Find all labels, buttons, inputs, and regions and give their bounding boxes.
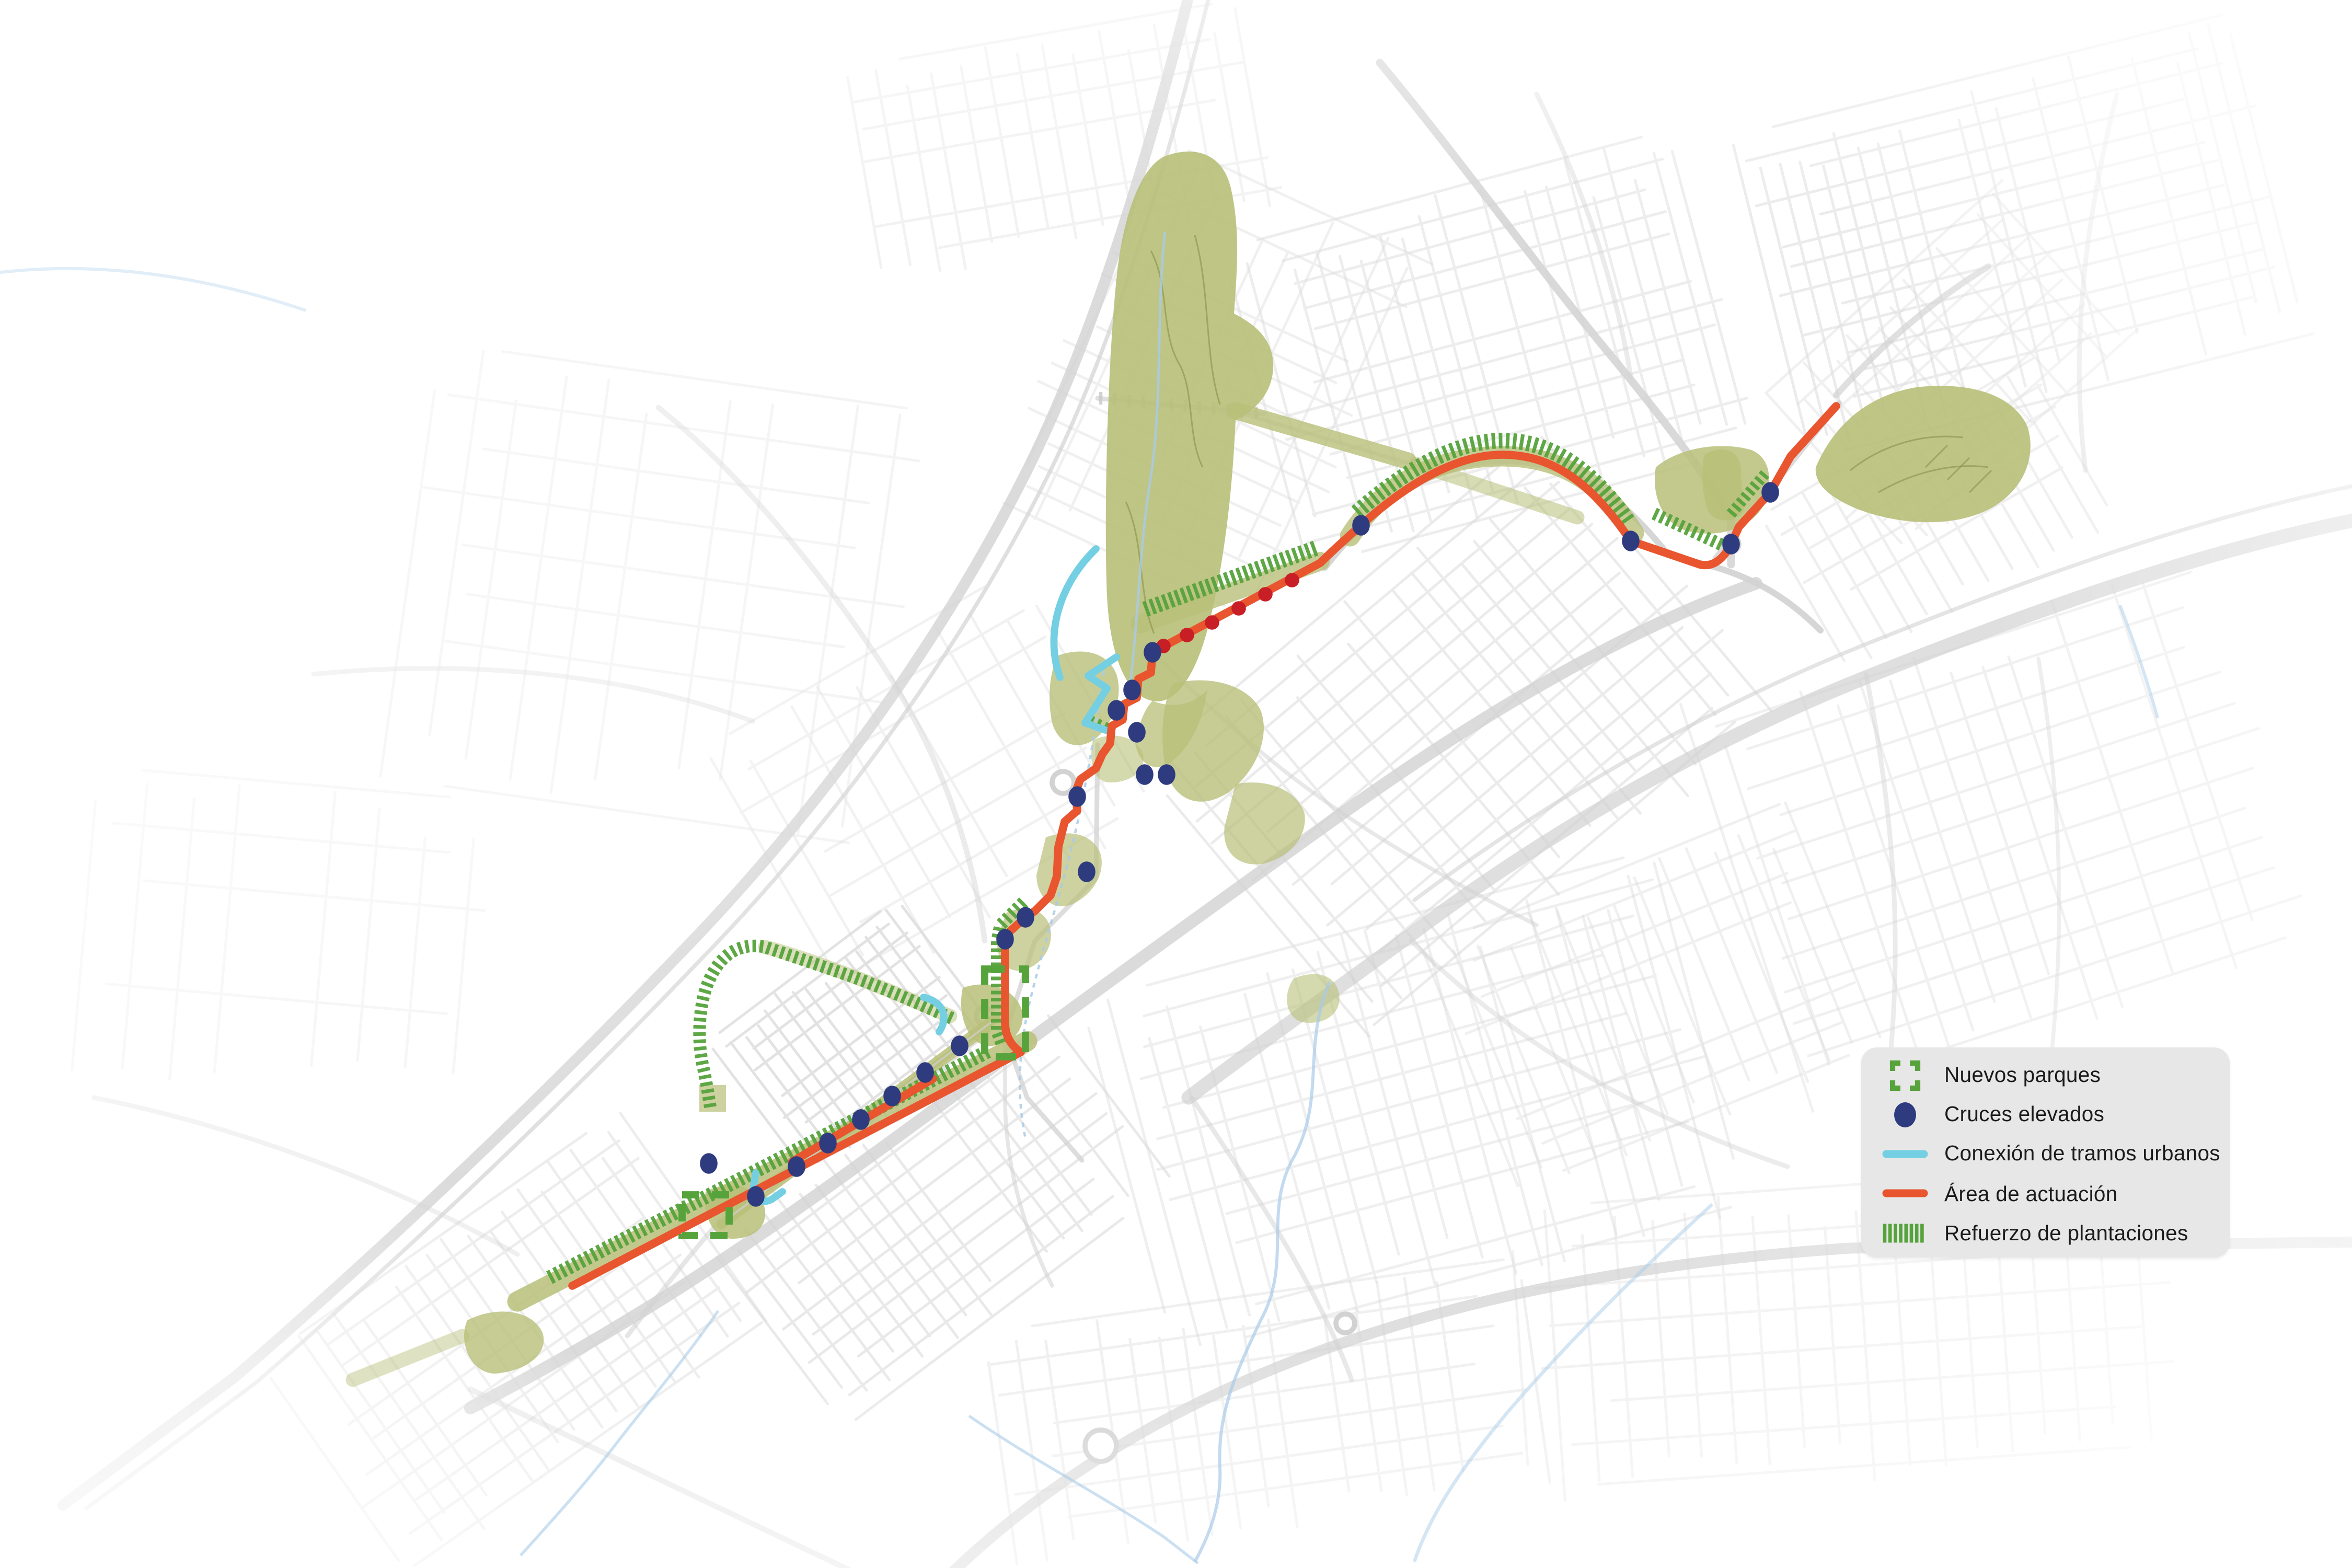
urban-plan-map	[0, 0, 2352, 1568]
dashed-square-icon	[1882, 1059, 1929, 1091]
elevated-crossing-dot	[1144, 642, 1161, 663]
elevated-crossing-dot	[1622, 531, 1640, 551]
legend-item-refuerzo-plantaciones: Refuerzo de plantaciones	[1861, 1213, 2230, 1253]
elevated-crossing-dot	[1108, 700, 1125, 721]
hatch-line-icon	[1882, 1221, 1929, 1245]
legend-label: Conexión de tramos urbanos	[1944, 1142, 2220, 1166]
legend-item-nuevos-parques: Nuevos parques	[1861, 1055, 2230, 1095]
route-point-dot	[1231, 601, 1246, 616]
route-point-dot	[1205, 615, 1219, 630]
elevated-crossing-dot	[700, 1153, 718, 1174]
elevated-crossing-dot	[1136, 764, 1154, 785]
route-point-dot	[1285, 573, 1299, 587]
elevated-crossing-dot	[747, 1186, 765, 1207]
elevated-crossing-dot	[883, 1086, 901, 1106]
elevated-crossing-dot	[819, 1133, 837, 1154]
elevated-crossing-dot	[1722, 534, 1740, 555]
route-point-dot	[1258, 587, 1273, 602]
legend-item-conexion-tramos: Conexión de tramos urbanos	[1861, 1134, 2230, 1174]
elevated-crossing-dot	[1017, 907, 1034, 928]
elevated-crossing-dot	[1158, 764, 1175, 785]
elevated-crossing-dot	[1123, 679, 1141, 700]
elevated-crossing-dot	[1078, 861, 1096, 882]
legend-label: Cruces elevados	[1944, 1103, 2104, 1126]
elevated-crossing-dot	[788, 1156, 805, 1177]
red-line-icon	[1882, 1185, 1929, 1201]
route-point-dot	[1180, 628, 1194, 642]
circle-icon	[1882, 1097, 1929, 1132]
elevated-crossing-dot	[916, 1062, 934, 1083]
elevated-crossing-dot	[1352, 515, 1370, 536]
cyan-line-icon	[1882, 1146, 1929, 1162]
elevated-crossing-dot	[1128, 722, 1146, 743]
elevated-crossing-dot	[852, 1109, 870, 1130]
elevated-crossing-dot	[1068, 786, 1086, 807]
elevated-crossing-dot	[1761, 482, 1779, 503]
legend-label: Nuevos parques	[1944, 1063, 2101, 1087]
legend-item-cruces-elevados: Cruces elevados	[1861, 1095, 2230, 1135]
legend-label: Refuerzo de plantaciones	[1944, 1221, 2188, 1245]
legend-item-area-actuacion: Área de actuación	[1861, 1174, 2230, 1214]
legend-panel: Nuevos parques Cruces elevados Conexión …	[1861, 1047, 2230, 1258]
legend-label: Área de actuación	[1944, 1182, 2118, 1205]
elevated-crossing-dot	[951, 1035, 969, 1056]
elevated-crossing-dot	[996, 929, 1014, 950]
urban-plan-screenshot: Nuevos parques Cruces elevados Conexión …	[0, 0, 2352, 1568]
